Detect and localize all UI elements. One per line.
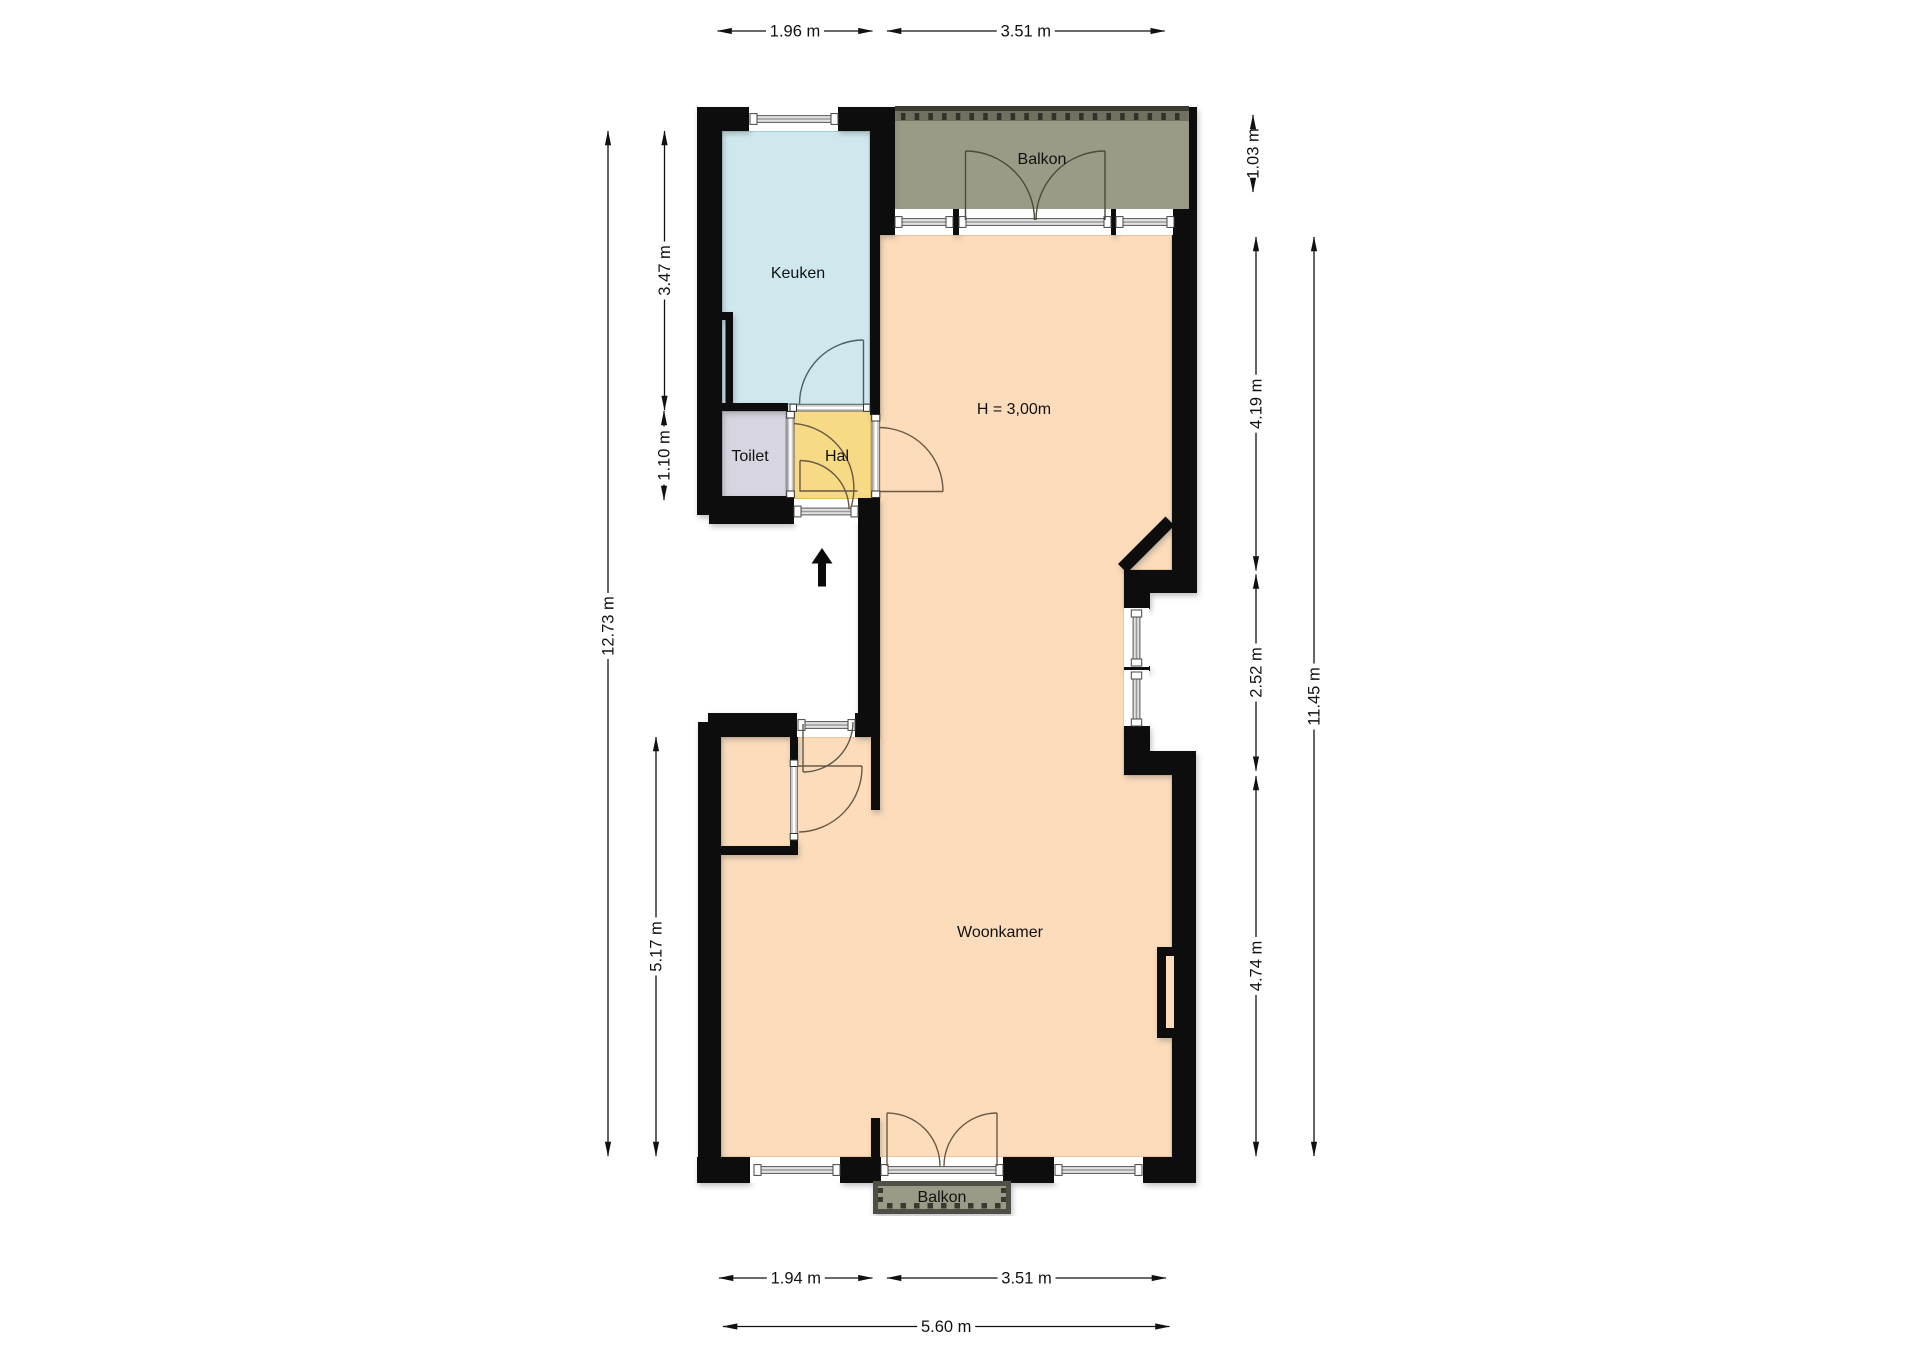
svg-text:5.17 m: 5.17 m: [648, 921, 666, 971]
svg-text:12.73 m: 12.73 m: [600, 596, 618, 656]
svg-text:3.51 m: 3.51 m: [1001, 23, 1051, 41]
svg-text:Hal: Hal: [825, 448, 849, 465]
svg-text:1.96 m: 1.96 m: [770, 23, 820, 41]
svg-text:Toilet: Toilet: [731, 448, 769, 465]
svg-text:4.74 m: 4.74 m: [1248, 941, 1266, 991]
svg-text:3.51 m: 3.51 m: [1001, 1270, 1051, 1288]
svg-text:4.19 m: 4.19 m: [1248, 379, 1266, 429]
svg-text:3.47 m: 3.47 m: [656, 245, 674, 295]
svg-text:5.60 m: 5.60 m: [921, 1318, 971, 1336]
svg-text:Woonkamer: Woonkamer: [957, 924, 1044, 941]
svg-text:Keuken: Keuken: [771, 265, 825, 282]
svg-text:2.52 m: 2.52 m: [1248, 647, 1266, 697]
svg-text:11.45 m: 11.45 m: [1306, 667, 1324, 725]
svg-text:Balkon: Balkon: [1018, 151, 1067, 168]
svg-text:H = 3,00m: H = 3,00m: [977, 401, 1051, 418]
svg-text:Balkon: Balkon: [918, 1189, 967, 1206]
svg-text:1.10 m: 1.10 m: [656, 430, 674, 480]
svg-text:1.94 m: 1.94 m: [771, 1270, 821, 1288]
svg-text:1.03 m: 1.03 m: [1245, 128, 1263, 178]
